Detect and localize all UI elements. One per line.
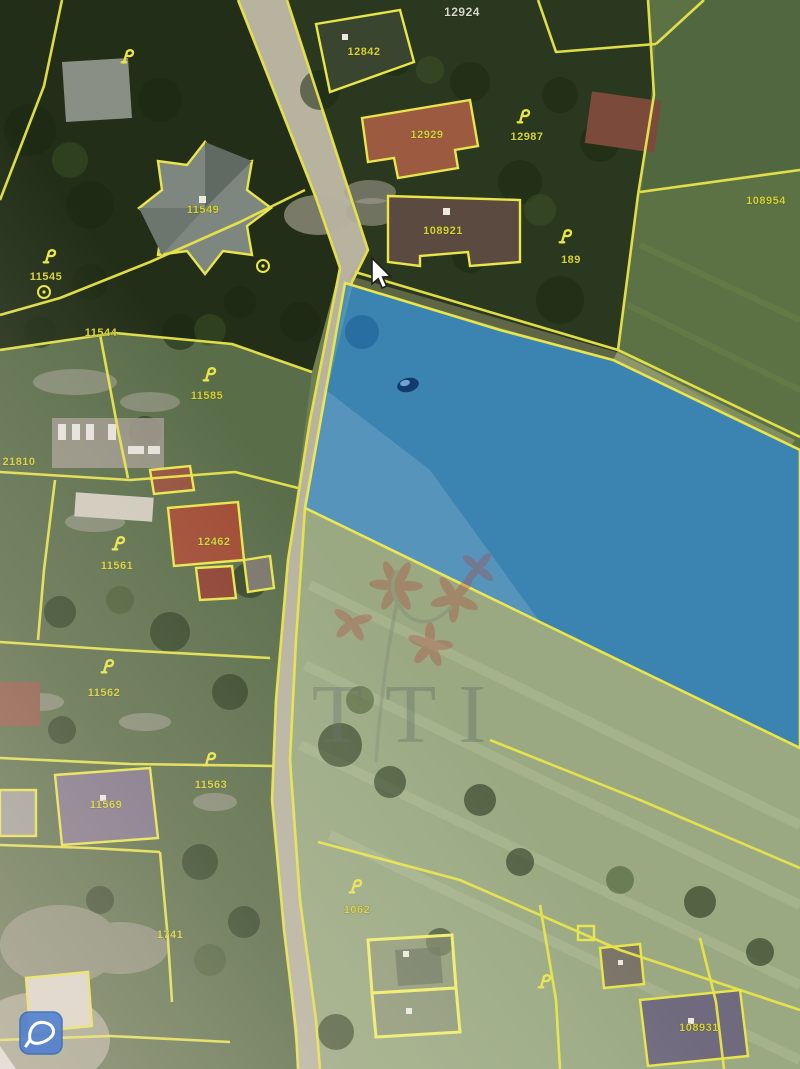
parcel-label: 12929 [410,129,443,141]
parcel-label: 11569 [90,799,122,811]
survey-point-dot [42,290,45,293]
map-viewport: 1292412842129291298710895411549108921189… [0,0,800,1069]
parcel-label: 11562 [88,687,120,699]
parcel-label: 11561 [101,560,133,572]
parcel-label: 108954 [746,195,786,207]
map-canvas[interactable]: 1292412842129291298710895411549108921189… [0,0,800,1069]
survey-point-dot [261,264,264,267]
parcel-label: 108931 [679,1022,719,1034]
parcel-label: 11544 [85,327,118,339]
parcel-label: 1741 [157,929,183,941]
parcel-label: 12987 [510,131,543,143]
watermark-text: TTI [312,668,509,761]
parcel-label: 11545 [30,271,62,283]
parcel-label: 11549 [187,204,219,216]
parcel-label: 21810 [2,456,35,468]
parcel-label: 11585 [191,390,223,402]
parcel-label: 11563 [195,779,227,791]
parcel-label: 189 [561,254,581,266]
map-tool-button[interactable] [20,1012,62,1054]
parcel-label: 12462 [197,536,230,548]
parcel-label: 1062 [344,904,370,916]
parcel-label: 12924 [444,5,480,19]
parcel-label: 12842 [347,46,380,58]
parcel-label: 108921 [423,225,463,237]
